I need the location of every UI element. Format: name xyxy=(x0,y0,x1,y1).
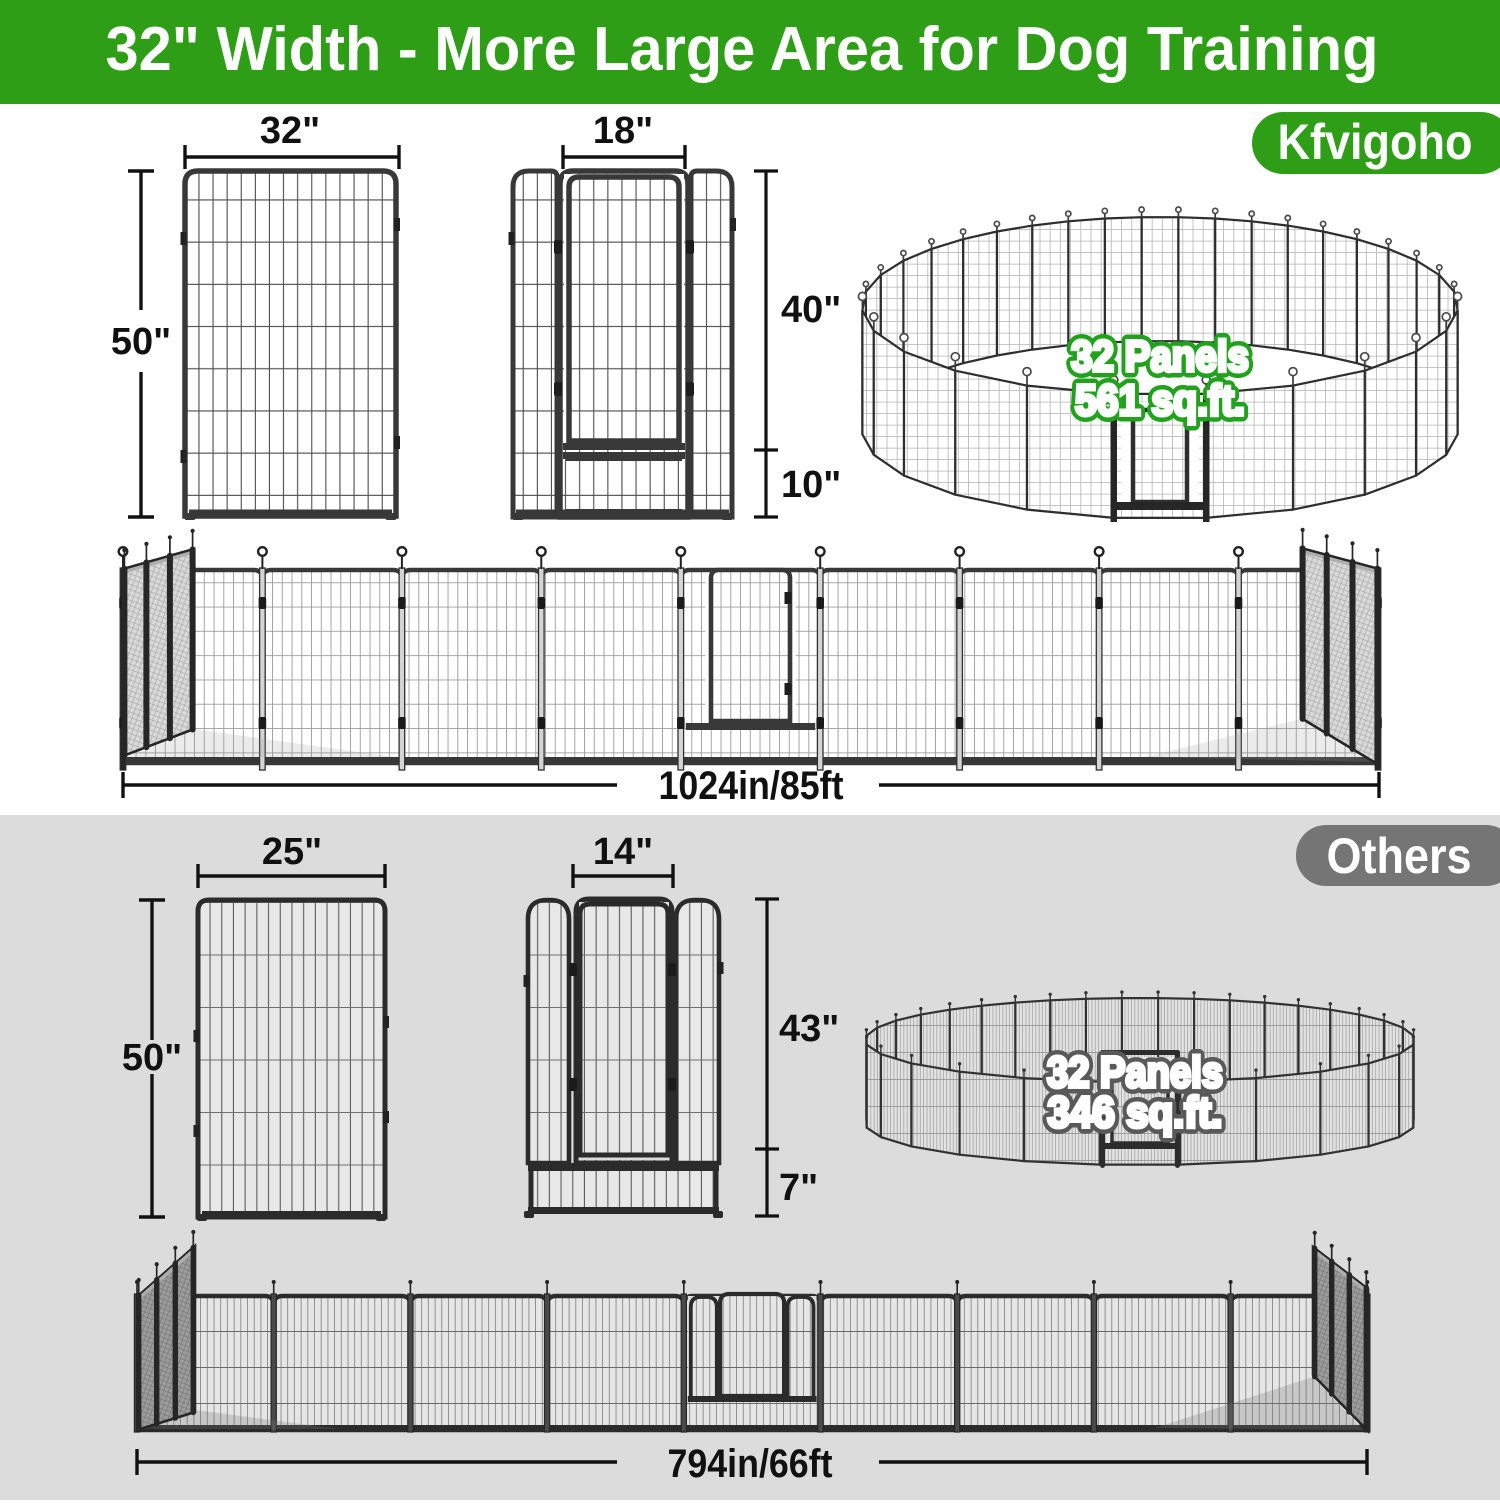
svg-text:794in/66ft: 794in/66ft xyxy=(668,1442,833,1486)
svg-text:18": 18" xyxy=(593,110,653,152)
svg-text:1024in/85ft: 1024in/85ft xyxy=(659,764,844,808)
svg-text:Others: Others xyxy=(1327,828,1472,884)
svg-text:25": 25" xyxy=(262,831,322,873)
svg-text:7": 7" xyxy=(779,1167,818,1209)
svg-text:14": 14" xyxy=(593,831,653,873)
svg-text:32 Panels: 32 Panels xyxy=(1071,332,1249,381)
svg-text:346 sq.ft.: 346 sq.ft. xyxy=(1048,1088,1223,1137)
svg-text:43": 43" xyxy=(779,1008,839,1050)
svg-text:50": 50" xyxy=(111,321,171,363)
svg-text:32": 32" xyxy=(260,110,320,152)
svg-text:32" Width - More Large Area fo: 32" Width - More Large Area for Dog Trai… xyxy=(106,15,1379,84)
svg-text:561 sq.ft.: 561 sq.ft. xyxy=(1075,376,1245,425)
svg-text:50": 50" xyxy=(122,1037,182,1079)
svg-text:Kfvigoho: Kfvigoho xyxy=(1278,114,1473,170)
svg-text:40": 40" xyxy=(781,289,841,331)
svg-text:10": 10" xyxy=(781,464,841,506)
